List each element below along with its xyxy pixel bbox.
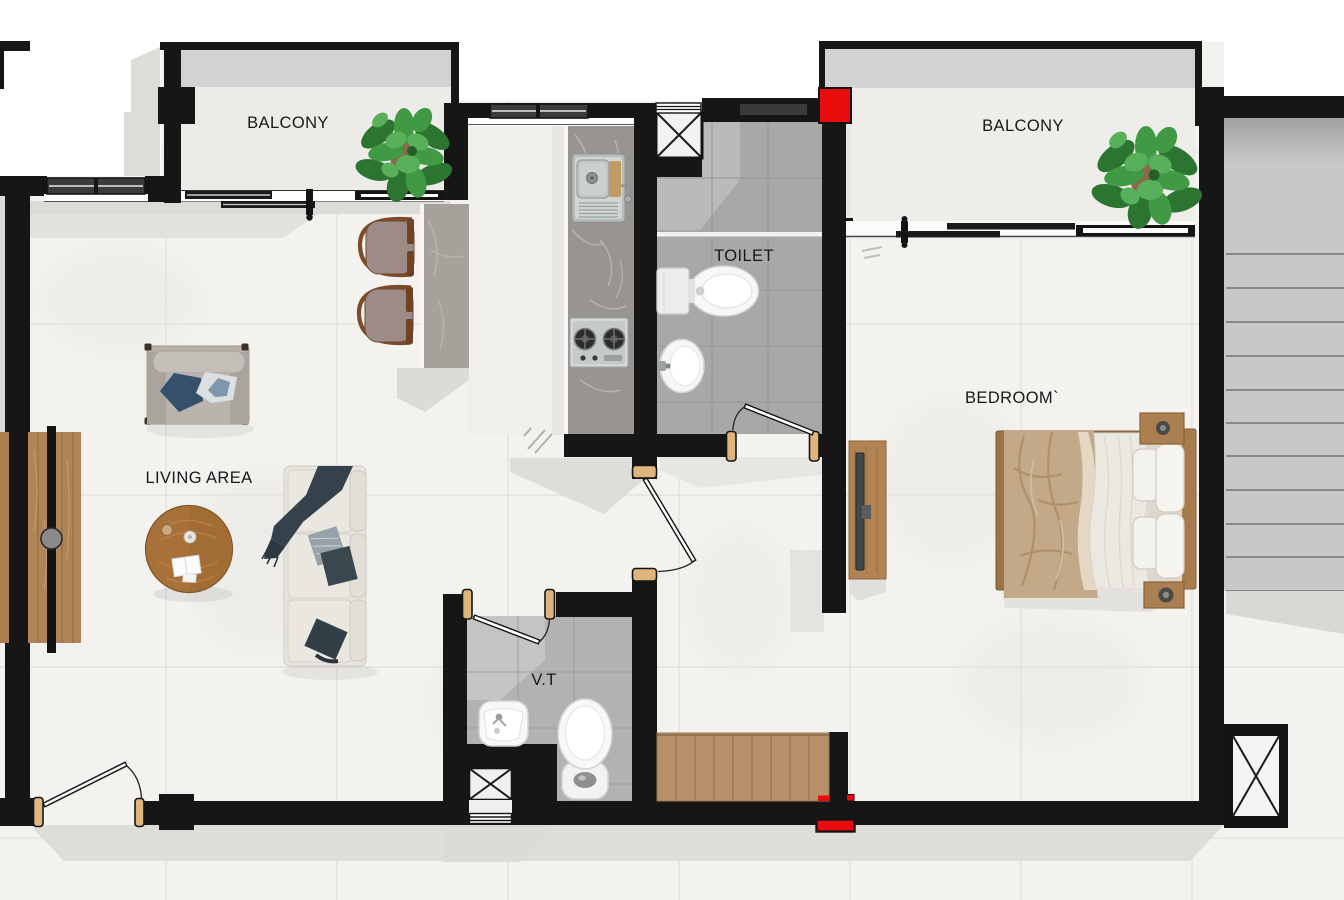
- svg-text:BALCONY: BALCONY: [247, 114, 329, 132]
- svg-text:LIVING AREA: LIVING AREA: [145, 469, 252, 487]
- svg-text:TOILET: TOILET: [714, 247, 774, 265]
- svg-text:V.T: V.T: [531, 671, 556, 689]
- svg-text:BALCONY: BALCONY: [982, 117, 1064, 135]
- svg-text:BEDROOM`: BEDROOM`: [965, 389, 1059, 407]
